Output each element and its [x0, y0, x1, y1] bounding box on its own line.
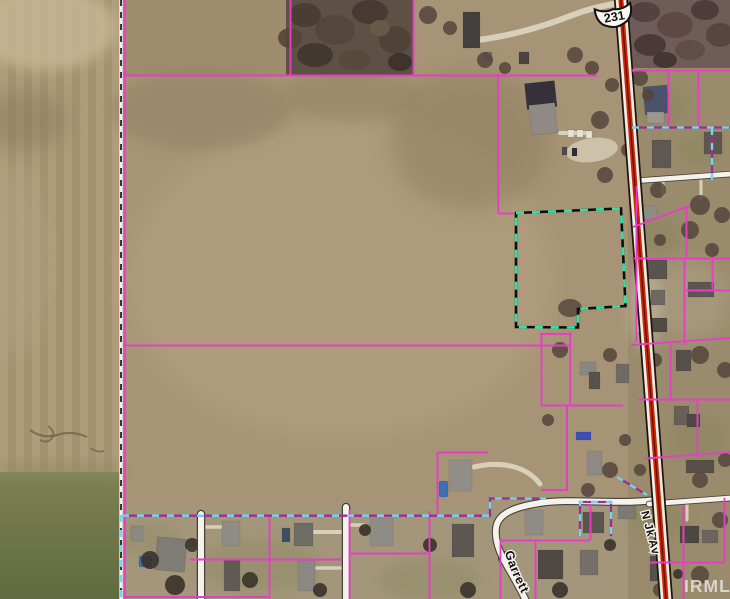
map-viewport[interactable]: 231 N Jk Av Garrett IRMLS	[0, 0, 730, 599]
road-south-a	[198, 511, 205, 599]
map-canvas: 231 N Jk Av Garrett IRMLS	[0, 0, 730, 599]
watermark-irmls: IRMLS	[684, 576, 730, 596]
road-south-b	[343, 504, 350, 599]
